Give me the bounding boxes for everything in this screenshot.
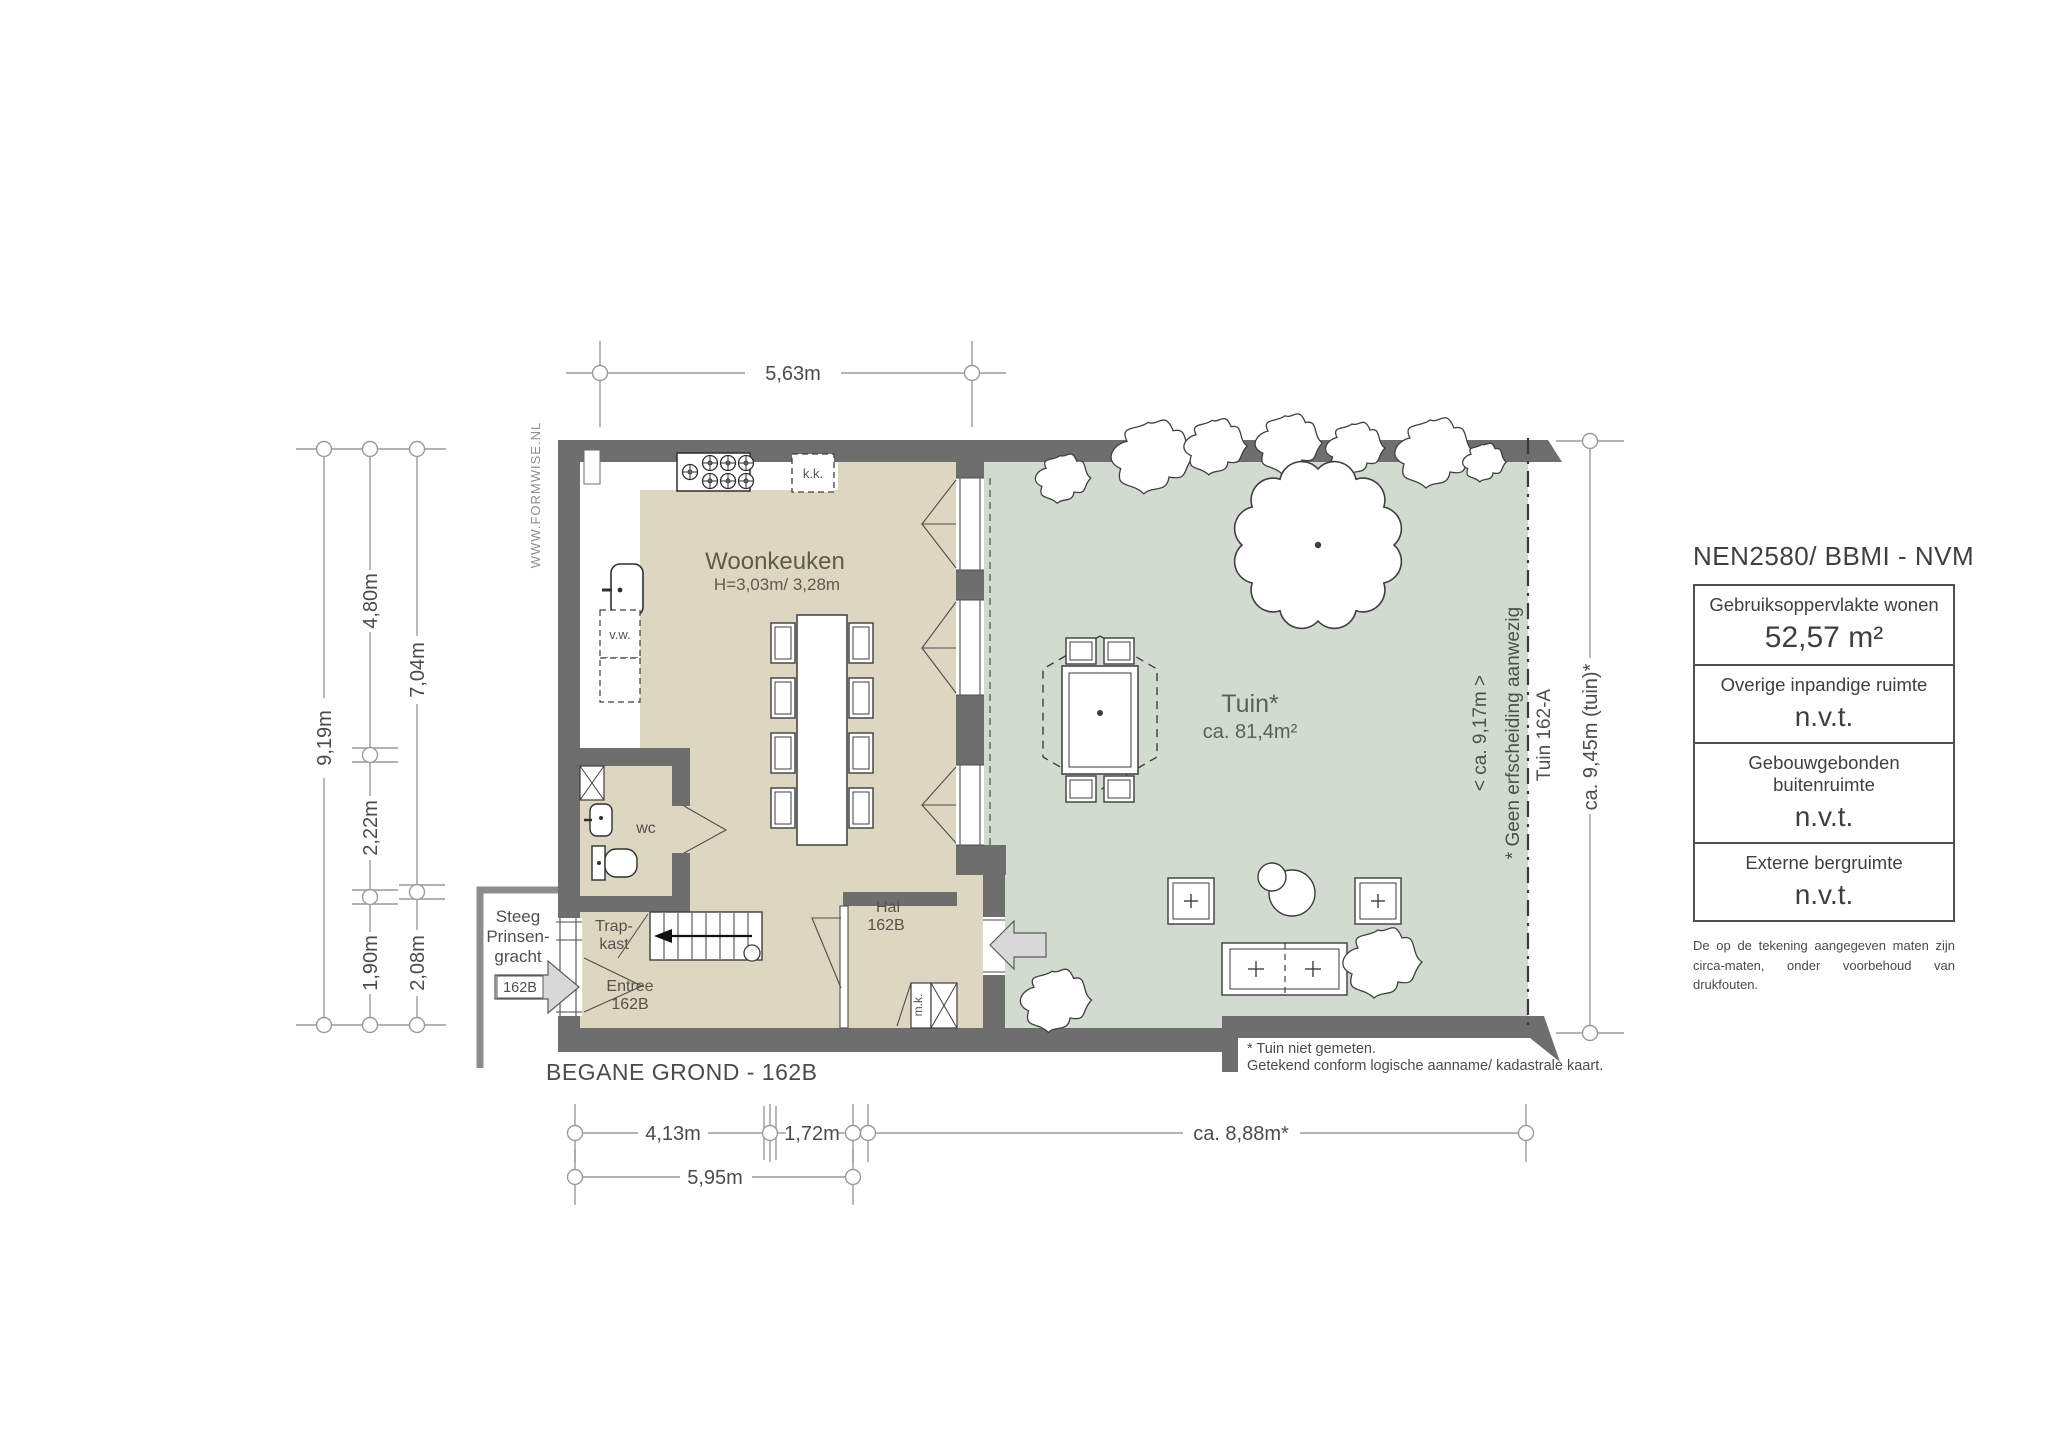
- dim-bottom-a2: 1,72m: [784, 1123, 840, 1145]
- floorplan-page: k.k. v.w.: [0, 0, 2048, 1450]
- disclaimer-line: De op de tekening aangegeven maten zijn: [1693, 936, 1955, 956]
- dim-top: 5,63m: [765, 363, 821, 385]
- entrance-arrow-label: 162B: [503, 980, 537, 996]
- svg-text:m.k.: m.k.: [911, 994, 925, 1017]
- dim-right-garden: ca. 9,45m (tuin)*: [1580, 663, 1602, 810]
- room-label-entree-2: 162B: [611, 996, 648, 1013]
- room-label-entree-1: Entree: [606, 978, 653, 995]
- info-row-label: Gebouwgebonden buitenruimte: [1697, 752, 1951, 796]
- neighbor-garden-label: Tuin 162-A: [1534, 689, 1555, 782]
- planter-icon: [1168, 878, 1214, 924]
- tree-icon: [1235, 462, 1402, 629]
- info-row: Gebouwgebonden buitenruimte n.v.t.: [1695, 742, 1953, 842]
- fridge-icon: k.k.: [792, 454, 834, 492]
- info-panel-heading: NEN2580/ BBMI - NVM: [1693, 541, 1955, 572]
- footnote-2: Getekend conform logische aanname/ kadas…: [1247, 1058, 1603, 1074]
- dim-left-total: 9,19m: [314, 710, 336, 766]
- info-row-value: 52,57 m²: [1697, 621, 1951, 655]
- dim-bottom-total: 5,95m: [687, 1167, 743, 1189]
- svg-text:v.w.: v.w.: [609, 627, 630, 642]
- room-label-trapkast-1: Trap-: [595, 918, 633, 935]
- planter-icon: [1355, 878, 1401, 924]
- room-label-hal-1: Hal: [876, 899, 900, 916]
- dim-left-b1: 7,04m: [407, 642, 429, 698]
- dim-left-b2: 2,08m: [407, 935, 429, 991]
- info-row: Overige inpandige ruimte n.v.t.: [1695, 664, 1953, 742]
- room-label-trapkast-2: kast: [599, 936, 629, 953]
- info-row-label: Externe bergruimte: [1697, 852, 1951, 874]
- room-label-wc: wc: [635, 820, 656, 837]
- stove-icon: [677, 453, 754, 491]
- street-label-3: gracht: [494, 947, 542, 966]
- dim-left-a3: 1,90m: [360, 935, 382, 991]
- info-panel-disclaimer: De op de tekening aangegeven maten zijn …: [1693, 936, 1955, 995]
- info-row: Gebruiksoppervlakte wonen 52,57 m²: [1695, 586, 1953, 664]
- info-row-value: n.v.t.: [1697, 879, 1951, 911]
- dim-left-a2: 2,22m: [360, 800, 382, 856]
- info-row-value: n.v.t.: [1697, 701, 1951, 733]
- disclaimer-line: circa-maten, onder voorbehoud van drukfo…: [1693, 956, 1955, 995]
- shaft-icon: [580, 766, 604, 800]
- nen2580-info-panel: NEN2580/ BBMI - NVM Gebruiksoppervlakte …: [1693, 541, 1955, 995]
- room-label-woonkeuken-height: H=3,03m/ 3,28m: [714, 575, 840, 594]
- info-row-value: n.v.t.: [1697, 801, 1951, 833]
- dishwasher-icon: v.w.: [600, 610, 640, 702]
- fence-note: * Geen erfscheiding aanwezig: [1503, 607, 1524, 859]
- dim-bottom-a1: 4,13m: [645, 1123, 701, 1145]
- watermark: WWW.FORMWISE.NL: [528, 422, 543, 568]
- room-label-woonkeuken: Woonkeuken: [705, 548, 845, 575]
- street-label-2: Prinsen-: [486, 927, 549, 946]
- room-label-tuin: Tuin*: [1221, 690, 1279, 718]
- info-panel-table: Gebruiksoppervlakte wonen 52,57 m² Overi…: [1693, 584, 1955, 922]
- garden-inner-dim: < ca. 9,17m >: [1470, 675, 1491, 791]
- info-row: Externe bergruimte n.v.t.: [1695, 842, 1953, 920]
- svg-text:k.k.: k.k.: [803, 466, 823, 481]
- street-label-1: Steeg: [496, 907, 540, 926]
- plan-title: BEGANE GROND - 162B: [546, 1059, 818, 1085]
- toilet-icon: [592, 846, 637, 880]
- info-row-label: Overige inpandige ruimte: [1697, 674, 1951, 696]
- dim-left-a1: 4,80m: [360, 573, 382, 629]
- side-table-icon: [1258, 863, 1286, 891]
- info-row-label: Gebruiksoppervlakte wonen: [1697, 594, 1951, 616]
- room-label-tuin-area: ca. 81,4m²: [1203, 721, 1298, 743]
- room-label-hal-2: 162B: [867, 917, 904, 934]
- lounger-icon: [1222, 943, 1347, 995]
- dim-bottom-garden: ca. 8,88m*: [1193, 1123, 1289, 1145]
- footnote-1: * Tuin niet gemeten.: [1247, 1041, 1376, 1057]
